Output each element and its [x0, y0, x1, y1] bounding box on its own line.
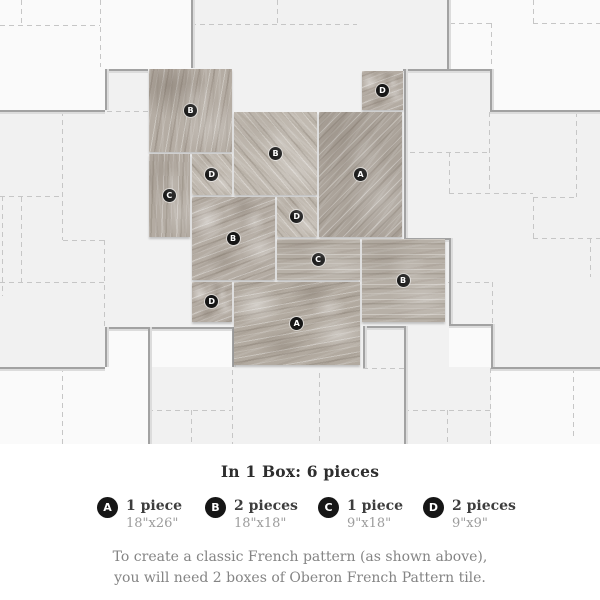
stone-tile-b: B [234, 112, 317, 195]
background-unit-patch [449, 324, 491, 367]
stone-tile-a: A [319, 112, 402, 238]
dashed-tile-outline [319, 373, 320, 444]
dashed-tile-outline [191, 24, 357, 25]
dashed-tile-outline [232, 370, 233, 444]
unit-boundary-line [403, 69, 490, 71]
stone-tile-a: A [234, 282, 360, 365]
stone-tile-b: B [192, 197, 275, 280]
dashed-tile-outline [576, 112, 577, 197]
tile-label-badge-d: D [376, 84, 389, 97]
dashed-tile-outline [449, 152, 450, 193]
unit-boundary-line [490, 110, 600, 112]
legend-badge-c: C [318, 497, 339, 518]
background-unit-patch [491, 368, 600, 444]
dashed-tile-outline [100, 0, 101, 67]
legend-tile-size: 18"x26" [126, 515, 182, 532]
unit-boundary-line [491, 324, 493, 367]
tile-label-badge-c: C [312, 253, 325, 266]
dashed-tile-outline [447, 410, 448, 444]
dashed-tile-outline [533, 23, 600, 24]
unit-boundary-line [449, 324, 491, 326]
unit-boundary-line [363, 326, 365, 368]
dashed-tile-outline [533, 197, 576, 198]
dashed-tile-outline [107, 111, 148, 112]
background-unit-patch [0, 367, 148, 444]
legend-text: 1 piece18"x26" [126, 497, 182, 532]
unit-boundary-line [404, 326, 406, 444]
unit-boundary-line [105, 327, 233, 329]
dashed-tile-outline [62, 367, 63, 444]
dashed-tile-outline [363, 368, 404, 369]
tile-label-badge-b: B [227, 232, 240, 245]
legend-badge-b: B [205, 497, 226, 518]
french-pattern-diagram: BCDBDABDCBDA [0, 0, 600, 444]
dashed-tile-outline [148, 410, 231, 411]
dashed-tile-outline [590, 238, 591, 277]
pattern-note: To create a classic French pattern (as s… [0, 547, 600, 588]
pattern-note-line2: you will need 2 boxes of Oberon French P… [114, 570, 486, 586]
dashed-tile-outline [489, 112, 490, 192]
legend-item-b: B2 pieces18"x18" [205, 497, 298, 532]
dashed-tile-outline [21, 0, 22, 25]
legend-item-d: D2 pieces9"x9" [423, 497, 516, 532]
tile-label-badge-d: D [205, 168, 218, 181]
tile-label-badge-b: B [269, 147, 282, 160]
dashed-tile-outline [533, 0, 534, 23]
dashed-tile-outline [0, 25, 100, 26]
dashed-tile-outline [277, 0, 278, 24]
background-unit-patch [490, 69, 600, 110]
tile-label-badge-a: A [354, 168, 367, 181]
dashed-tile-outline [573, 368, 574, 440]
pattern-note-line1: To create a classic French pattern (as s… [113, 549, 488, 565]
unit-boundary-line [363, 326, 404, 328]
unit-boundary-line [491, 367, 600, 369]
tile-label-badge-b: B [184, 104, 197, 117]
legend-item-a: A1 piece18"x26" [97, 497, 182, 532]
dashed-tile-outline [491, 23, 492, 68]
legend-tile-size: 9"x18" [347, 515, 403, 532]
dashed-tile-outline [2, 196, 3, 296]
stone-tile-b: B [149, 69, 232, 152]
dashed-tile-outline [104, 240, 105, 327]
stone-tile-c: C [149, 154, 190, 237]
dashed-tile-outline [21, 197, 22, 282]
dashed-tile-outline [533, 197, 534, 238]
legend-piece-count: 2 pieces [234, 498, 298, 515]
box-contents-title: In 1 Box: 6 pieces [0, 462, 600, 481]
stone-tile-d: D [362, 71, 403, 110]
legend-tile-size: 9"x9" [452, 515, 516, 532]
stone-tile-d: D [192, 282, 233, 323]
dashed-tile-outline [191, 410, 192, 444]
background-unit-patch [105, 0, 191, 69]
tile-label-badge-a: A [290, 317, 303, 330]
stone-tile-b: B [362, 239, 445, 322]
dashed-tile-outline [450, 23, 491, 24]
unit-boundary-line [191, 0, 193, 68]
tile-label-badge-b: B [397, 274, 410, 287]
dashed-tile-outline [62, 111, 63, 240]
unit-boundary-line [105, 69, 148, 71]
unit-boundary-line [0, 110, 105, 112]
legend-text: 2 pieces9"x9" [452, 497, 516, 532]
stone-tile-c: C [277, 239, 360, 280]
legend-piece-count: 2 pieces [452, 498, 516, 515]
unit-boundary-line [148, 327, 150, 444]
legend-tile-size: 18"x18" [234, 515, 298, 532]
tile-label-badge-d: D [290, 210, 303, 223]
dashed-tile-outline [0, 196, 62, 197]
legend-text: 1 piece9"x18" [347, 497, 403, 532]
dashed-tile-outline [492, 282, 493, 323]
dashed-tile-outline [490, 368, 491, 444]
unit-boundary-line [105, 69, 107, 110]
unit-boundary-line [449, 238, 451, 324]
unit-boundary-line [447, 0, 449, 69]
legend-text: 2 pieces18"x18" [234, 497, 298, 532]
legend-piece-count: 1 piece [126, 498, 182, 515]
background-unit-patch [0, 0, 105, 110]
legend-item-c: C1 piece9"x18" [318, 497, 403, 532]
unit-boundary-line [105, 327, 107, 367]
dashed-tile-outline [63, 240, 104, 241]
unit-boundary-line [0, 367, 105, 369]
stone-tile-d: D [192, 154, 233, 195]
legend-piece-count: 1 piece [347, 498, 403, 515]
tile-pattern-infographic: BCDBDABDCBDA In 1 Box: 6 pieces A1 piece… [0, 0, 600, 600]
background-unit-patch [447, 0, 600, 69]
unit-boundary-line [404, 69, 406, 238]
background-unit-patch [105, 327, 233, 367]
legend-badge-a: A [97, 497, 118, 518]
dashed-tile-outline [449, 193, 533, 194]
unit-boundary-line [490, 69, 492, 110]
stone-tile-d: D [277, 197, 318, 238]
dashed-tile-outline [0, 282, 104, 283]
dashed-tile-outline [448, 282, 492, 283]
legend-badge-d: D [423, 497, 444, 518]
tile-label-badge-c: C [163, 189, 176, 202]
tile-label-badge-d: D [205, 295, 218, 308]
